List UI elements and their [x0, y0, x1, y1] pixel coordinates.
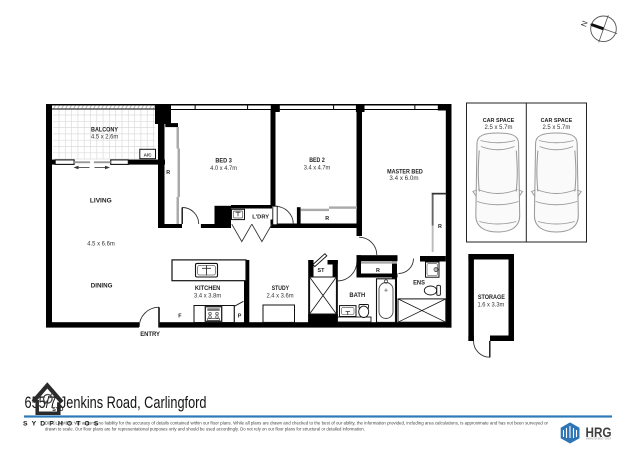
svg-text:2.5 x 5.7m: 2.5 x 5.7m — [542, 125, 570, 131]
svg-text:STORAGE: STORAGE — [478, 294, 506, 301]
svg-text:2.5 x 5.7m: 2.5 x 5.7m — [485, 125, 513, 131]
svg-text:MASTER BED: MASTER BED — [387, 169, 423, 176]
svg-text:4.5 x 2.6m: 4.5 x 2.6m — [91, 135, 118, 141]
svg-text:STUDY: STUDY — [272, 285, 290, 292]
svg-text:KITCHEN: KITCHEN — [195, 285, 221, 292]
svg-text:1.6 x 3.3m: 1.6 x 3.3m — [477, 302, 504, 308]
svg-text:LIVING: LIVING — [90, 198, 112, 205]
svg-text:P: P — [238, 314, 242, 320]
svg-text:ENS: ENS — [413, 280, 425, 287]
svg-text:BED 3: BED 3 — [215, 157, 232, 164]
svg-text:3.4 x 6.0m: 3.4 x 6.0m — [389, 176, 418, 182]
svg-text:ENTRY: ENTRY — [140, 331, 160, 338]
svg-text:BALCONY: BALCONY — [91, 127, 119, 134]
svg-text:L'DRY: L'DRY — [252, 214, 269, 220]
svg-text:CAR SPACE: CAR SPACE — [541, 118, 573, 124]
svg-text:DISCLAIMER: We assume no liabi: DISCLAIMER: We assume no liability for t… — [45, 421, 549, 426]
svg-text:drawn to scale. Our floor plan: drawn to scale. Our floor plans are for … — [45, 427, 365, 432]
svg-text:ST: ST — [318, 268, 326, 274]
svg-text:A/C: A/C — [144, 153, 153, 158]
svg-text:BATH: BATH — [349, 292, 365, 299]
svg-text:HRG: HRG — [586, 424, 612, 440]
svg-text:SYD: SYD — [52, 407, 63, 413]
svg-text:3.4 x 4.7m: 3.4 x 4.7m — [304, 165, 331, 171]
svg-text:2.4 x 3.6m: 2.4 x 3.6m — [266, 293, 293, 299]
svg-text:4.0 x 4.7m: 4.0 x 4.7m — [210, 166, 237, 172]
svg-text:HARRINGTON REALTY GROUP: HARRINGTON REALTY GROUP — [586, 438, 611, 441]
svg-text:DINING: DINING — [91, 283, 113, 290]
svg-text:4.5 x 6.6m: 4.5 x 6.6m — [87, 241, 115, 247]
svg-text:R: R — [438, 224, 442, 230]
svg-text:R: R — [166, 170, 170, 176]
svg-text:CAR SPACE: CAR SPACE — [483, 118, 515, 124]
svg-text:BED 2: BED 2 — [309, 157, 325, 164]
svg-text:3.4 x 3.8m: 3.4 x 3.8m — [194, 293, 221, 299]
svg-text:R: R — [325, 216, 329, 222]
svg-text:R: R — [376, 268, 380, 274]
